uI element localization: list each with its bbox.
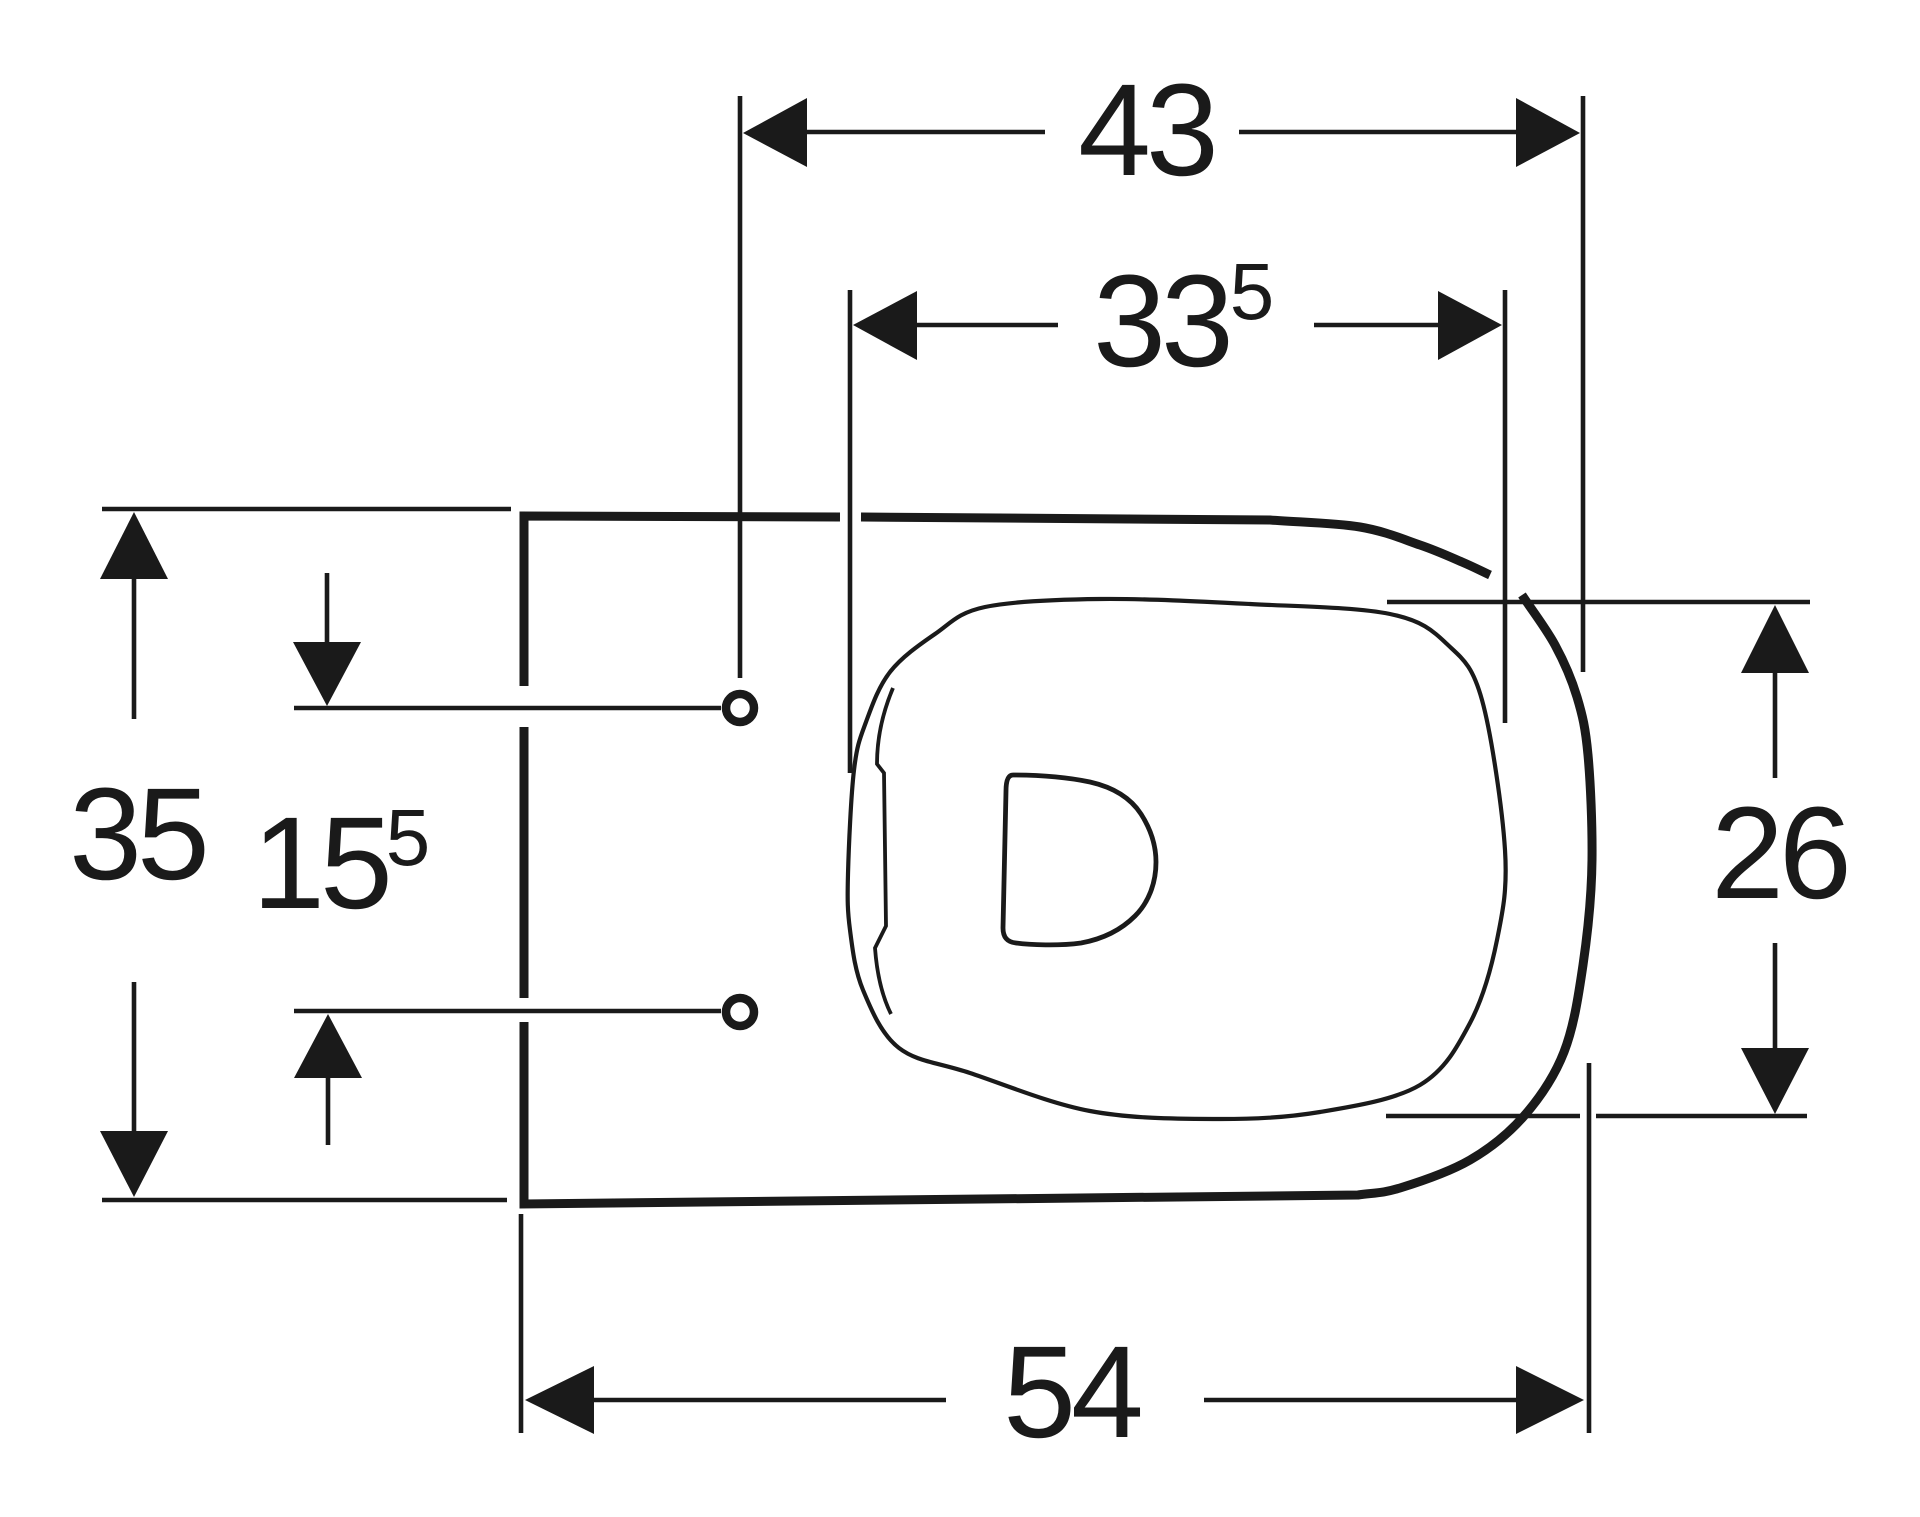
svg-text:35: 35 [69, 760, 205, 907]
svg-text:54: 54 [1003, 1318, 1141, 1465]
svg-text:26: 26 [1711, 779, 1847, 926]
svg-text:15: 15 [252, 789, 388, 936]
svg-text:43: 43 [1078, 56, 1214, 203]
svg-text:33: 33 [1093, 247, 1229, 394]
svg-text:5: 5 [1230, 247, 1275, 336]
svg-text:5: 5 [386, 793, 431, 882]
